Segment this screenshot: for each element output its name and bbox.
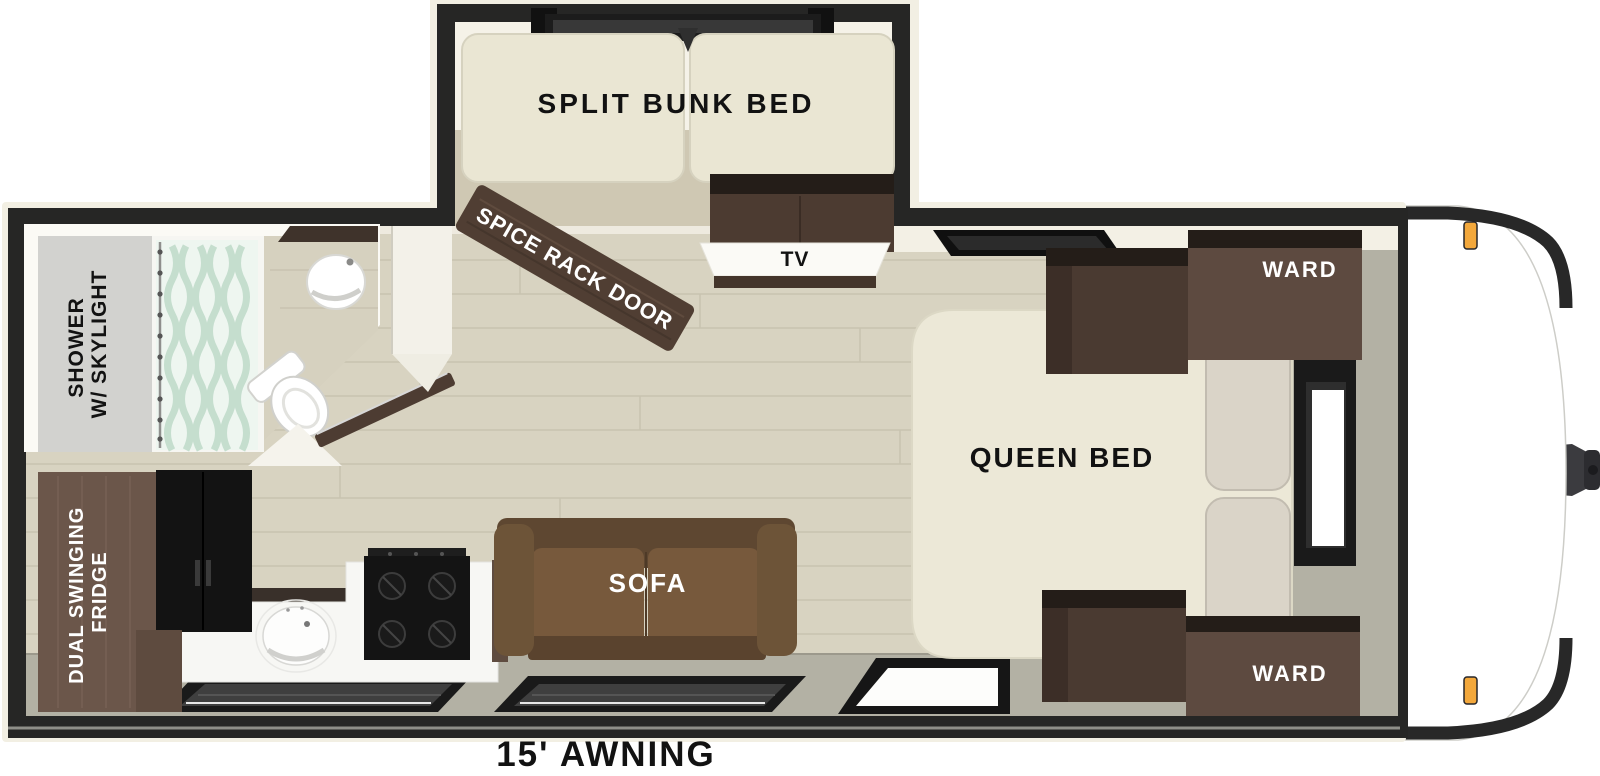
wardrobe-top: WARD xyxy=(1046,230,1362,374)
queen-bed-label: QUEEN BED xyxy=(970,442,1154,473)
marker-light-icon xyxy=(1464,677,1477,704)
shower-curtain xyxy=(156,240,258,450)
shower-label: SHOWER W/ SKYLIGHT xyxy=(65,270,111,419)
floorplan-screenshot: SPLIT BUNK BED xyxy=(0,0,1600,776)
bunk-cabinet xyxy=(710,174,894,194)
front-cap-body xyxy=(1396,206,1566,740)
sofa-label: SOFA xyxy=(609,568,688,598)
tv-label: TV xyxy=(781,248,810,271)
front-cap xyxy=(1396,206,1566,740)
fridge-label-line1: DUAL SWINGING xyxy=(66,507,88,684)
awning-label: 15' AWNING xyxy=(496,735,716,774)
window xyxy=(494,676,806,712)
wall-cabinet xyxy=(392,226,452,354)
stove xyxy=(364,548,470,660)
marker-light-icon xyxy=(1464,222,1477,249)
shower-label-line1: SHOWER xyxy=(65,297,88,398)
kitchen-sink xyxy=(256,600,336,672)
shower-label-line2: W/ SKYLIGHT xyxy=(88,270,111,419)
sofa: SOFA xyxy=(494,518,797,660)
bedroom-window xyxy=(1294,356,1356,566)
wardrobe-top-label: WARD xyxy=(1262,257,1337,282)
entertainment: TV xyxy=(700,243,890,288)
floorplan-canvas: SPLIT BUNK BED xyxy=(0,0,1600,776)
bunk-room-label: SPLIT BUNK BED xyxy=(538,88,815,119)
wardrobe-bottom-label: WARD xyxy=(1252,661,1327,686)
fridge-label-line2: FRIDGE xyxy=(89,551,111,633)
